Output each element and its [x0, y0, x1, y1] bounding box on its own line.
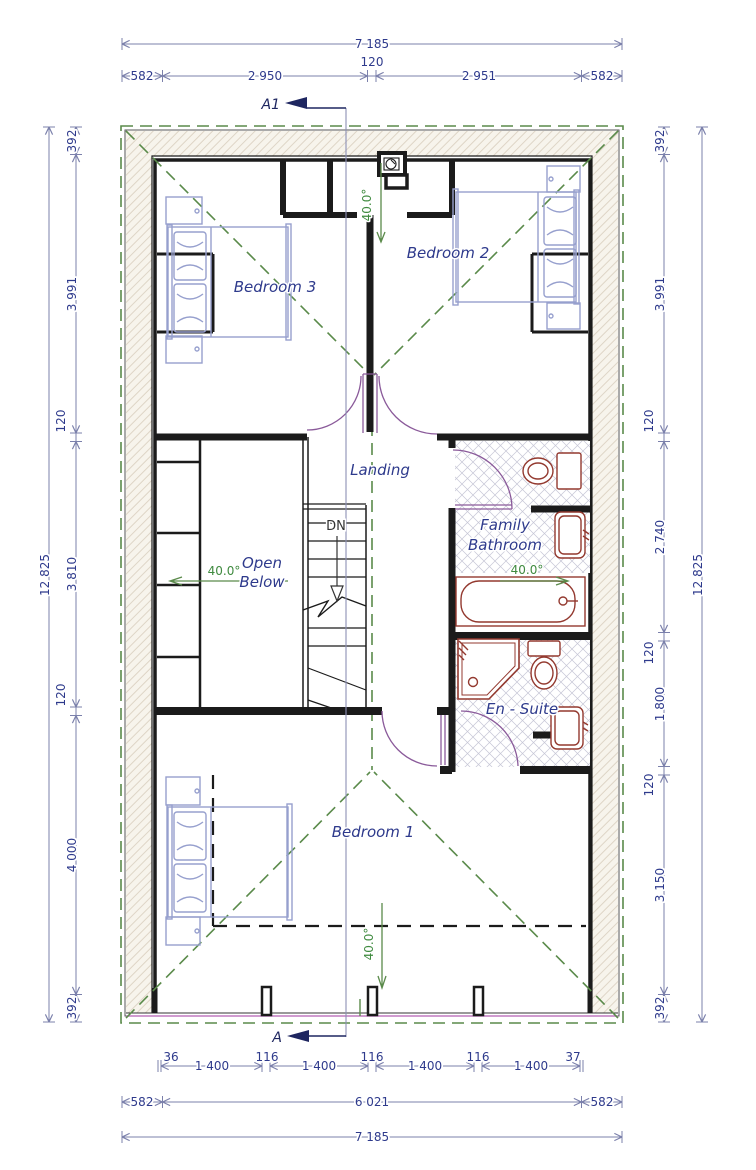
open-below-label-1: Open	[242, 554, 282, 572]
dim-b2-0: 582	[131, 1095, 154, 1109]
dim-l-3: 3 810	[65, 557, 79, 591]
section-label-bottom: A	[271, 1030, 282, 1046]
dim-right-overall: 12 825	[691, 554, 705, 596]
dim-r-3: 2 740	[653, 520, 667, 554]
floor-plan: 40.0° 40.0° 40.0° 40.0° A1 A Bedroom 3 B…	[0, 0, 756, 1170]
dim-r-5: 1 800	[653, 687, 667, 721]
dim-top-4: 582	[591, 69, 614, 83]
dim-b1-6: 116	[467, 1050, 490, 1064]
dim-b2-2: 582	[591, 1095, 614, 1109]
ensuite-toilet	[528, 641, 560, 689]
family-bathroom-label-1: Family	[480, 516, 531, 534]
bathroom-sink	[555, 512, 589, 558]
down-arrowhead-icon	[331, 586, 343, 601]
dim-top-3: 2 951	[462, 69, 496, 83]
family-bathroom-label-2: Bathroom	[468, 536, 542, 554]
landing-label: Landing	[350, 461, 410, 479]
dim-b2-1: 6 021	[355, 1095, 389, 1109]
bedroom1-door	[382, 711, 445, 766]
bedroom3-label: Bedroom 3	[234, 278, 317, 296]
dim-top-overall: 7 185	[355, 37, 389, 51]
dim-r-8: 392	[653, 997, 667, 1020]
dim-r-6: 120	[642, 774, 656, 797]
section-arrow-bottom-icon	[287, 1030, 309, 1042]
dim-r-1: 3 991	[653, 277, 667, 311]
dim-l-6: 392	[65, 997, 79, 1020]
floor-plan-page: 40.0° 40.0° 40.0° 40.0° A1 A Bedroom 3 B…	[0, 0, 756, 1170]
dim-l-0: 392	[65, 130, 79, 153]
dim-l-4: 120	[54, 684, 68, 707]
dim-left-overall: 12 825	[38, 554, 52, 596]
dim-top-1: 2 950	[248, 69, 282, 83]
bedroom2-label: Bedroom 2	[407, 244, 490, 262]
dim-l-1: 3 991	[65, 277, 79, 311]
dim-b1-1: 1 400	[195, 1059, 229, 1073]
dimensions-top: 7 185 582 2 950 120 2 951 582	[122, 37, 622, 83]
dim-l-2: 120	[54, 410, 68, 433]
bedroom1-bed	[166, 777, 292, 945]
bathtub	[456, 577, 585, 626]
dim-r-2: 120	[642, 410, 656, 433]
dimensions-right: 392 3 991 120 2 740 120 1 800 120 3 150 …	[642, 127, 708, 1022]
bottom-posts	[262, 987, 483, 1015]
section-arrow-top-icon	[285, 97, 307, 109]
pitch-label-left: 40.0°	[208, 564, 241, 578]
dim-r-4: 120	[642, 642, 656, 665]
bedroom2-door-arc	[379, 376, 437, 434]
bedroom3-door-arc	[307, 376, 361, 430]
dim-b1-2: 116	[256, 1050, 279, 1064]
ensuite-label: En - Suite	[486, 700, 558, 718]
dim-b1-0: 36	[163, 1050, 178, 1064]
pitch-arrow-bottom-icon	[378, 903, 386, 988]
dim-b1-7: 1 400	[514, 1059, 548, 1073]
chimney	[379, 153, 407, 188]
dim-l-5: 4 000	[65, 838, 79, 872]
section-label-top: A1	[261, 97, 280, 113]
dim-top-2: 120	[361, 55, 384, 69]
dim-b1-5: 1 400	[408, 1059, 442, 1073]
open-below-label-2: Below	[239, 573, 285, 591]
pitch-label-bottom: 40.0°	[362, 928, 376, 961]
dim-b1-3: 1 400	[302, 1059, 336, 1073]
dimensions-bottom: 36 1 400 116 1 400 116 1 400 116 1 400 3…	[122, 1050, 622, 1144]
stairs-dn-label: DN	[326, 519, 346, 534]
dimensions-left: 392 3 991 120 3 810 120 4 000 392 12 825	[38, 127, 82, 1022]
dim-top-0: 582	[131, 69, 154, 83]
bedroom1-label: Bedroom 1	[332, 823, 415, 841]
dim-r-7: 3 150	[653, 868, 667, 902]
pitch-label-bathroom: 40.0°	[511, 563, 544, 577]
dim-r-0: 392	[653, 130, 667, 153]
dim-b1-4: 116	[361, 1050, 384, 1064]
pitch-label-top: 40.0°	[360, 189, 374, 222]
dim-b1-8: 37	[565, 1050, 580, 1064]
dim-bottom-overall: 7 185	[355, 1130, 389, 1144]
break-line	[303, 597, 366, 617]
